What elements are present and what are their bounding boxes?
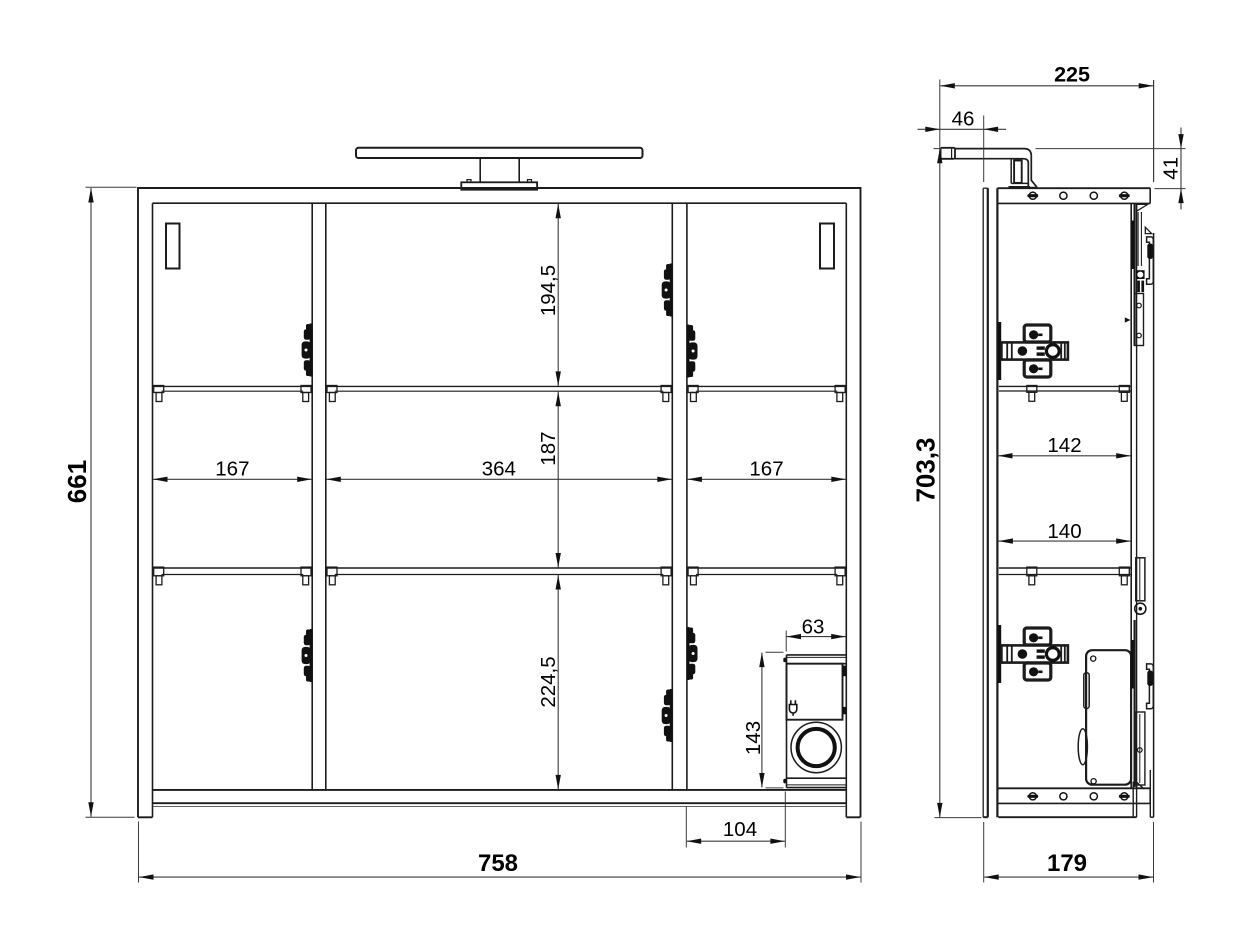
svg-text:758: 758 (478, 850, 518, 877)
svg-text:143: 143 (742, 721, 765, 755)
svg-text:661: 661 (62, 460, 92, 503)
svg-text:41: 41 (1159, 157, 1182, 180)
svg-text:703,3: 703,3 (911, 437, 941, 502)
svg-text:63: 63 (802, 616, 825, 639)
svg-text:179: 179 (1047, 850, 1087, 877)
svg-text:167: 167 (215, 457, 249, 480)
svg-text:225: 225 (1054, 63, 1090, 87)
svg-text:364: 364 (482, 457, 516, 480)
svg-text:167: 167 (749, 457, 783, 480)
svg-text:194,5: 194,5 (537, 265, 560, 316)
svg-text:142: 142 (1047, 434, 1081, 457)
svg-text:140: 140 (1047, 520, 1081, 543)
svg-text:224,5: 224,5 (537, 656, 560, 707)
svg-text:187: 187 (537, 431, 560, 465)
svg-text:46: 46 (952, 107, 975, 130)
svg-text:104: 104 (723, 818, 757, 841)
